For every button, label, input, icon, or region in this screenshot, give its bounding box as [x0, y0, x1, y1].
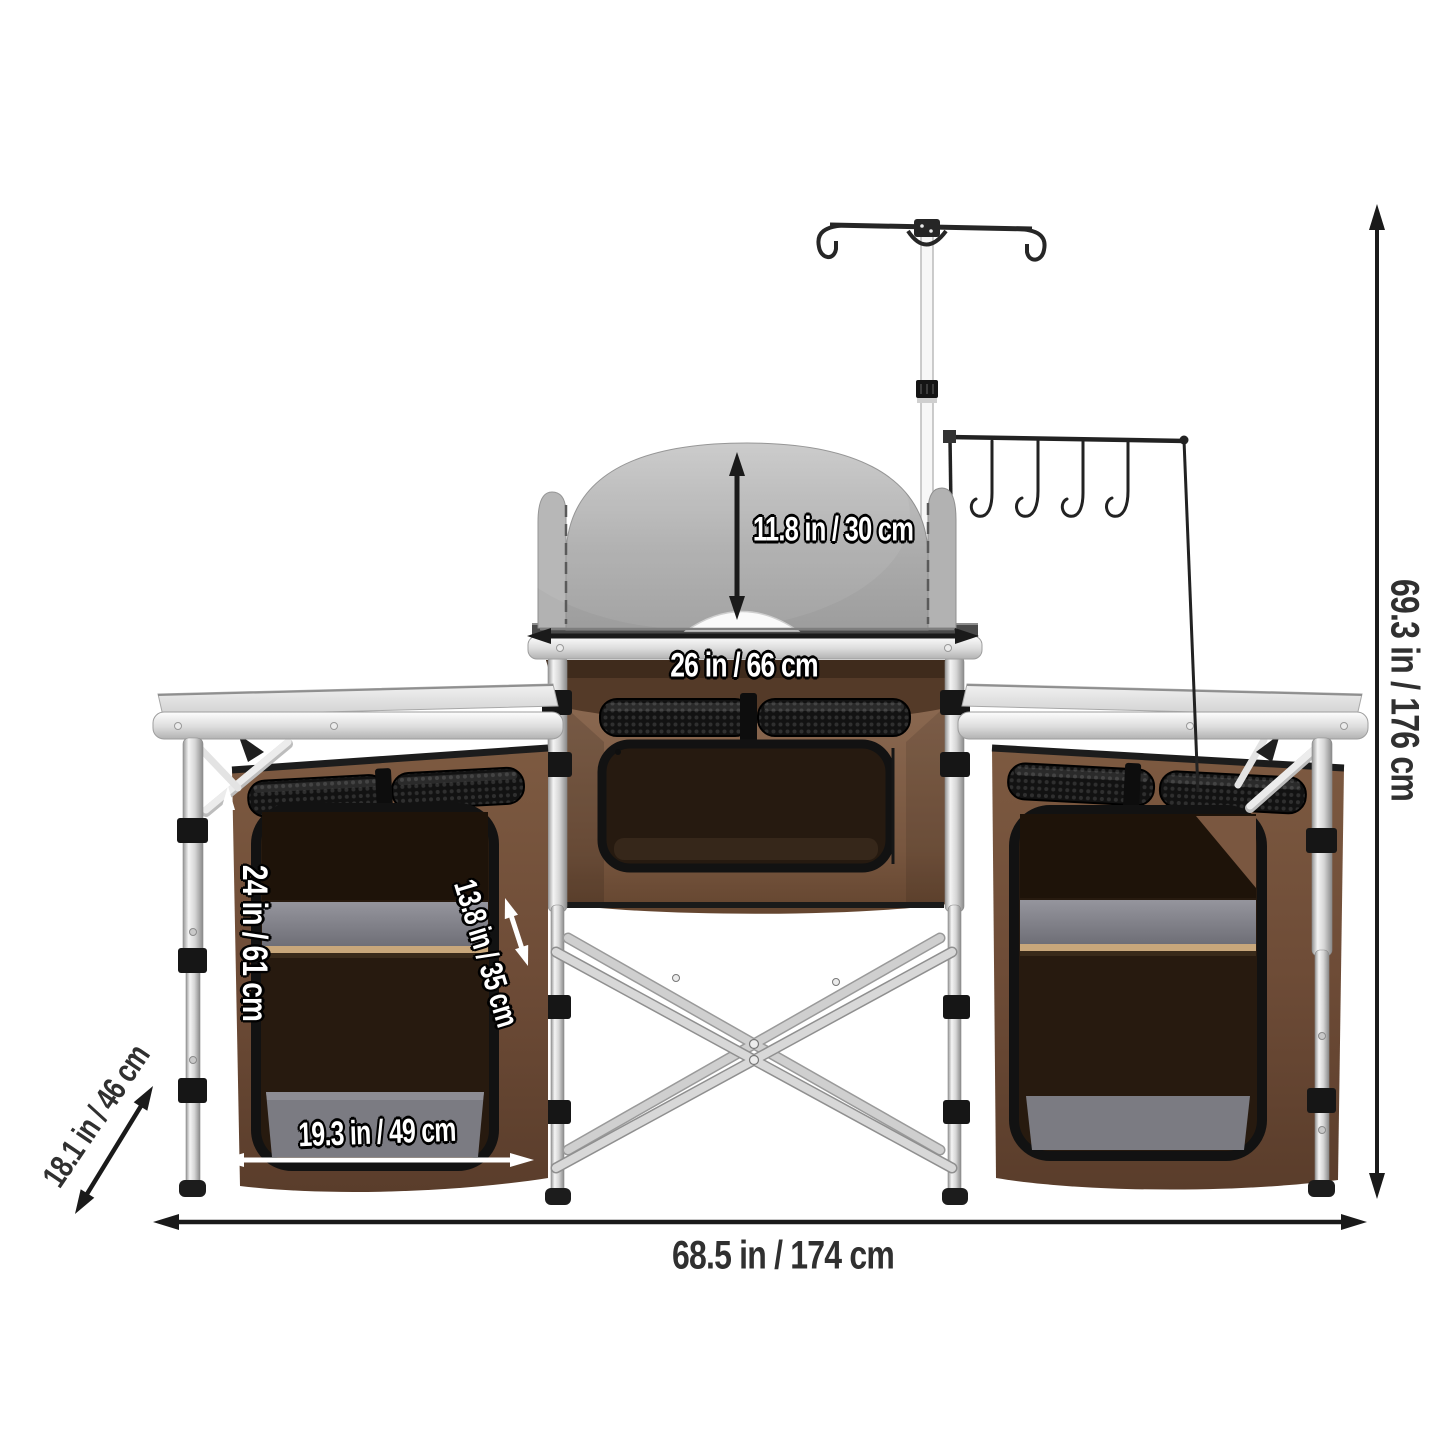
center-storage-unit: [546, 660, 960, 914]
right-compartment-opening: [1014, 810, 1262, 1156]
right-shelf: [1020, 900, 1256, 946]
dimension-arrow-total-width: [153, 1214, 1367, 1230]
dimension-arrow-cabinet-height: [221, 786, 235, 1152]
s-hook-icon: [971, 441, 1128, 516]
left-cabinet: [232, 748, 548, 1192]
dimension-arrow-total-height: [1369, 204, 1385, 1199]
left-compartment-opening: [256, 808, 494, 1166]
right-cabinet: [992, 748, 1344, 1190]
camping-kitchen-illustration: [0, 0, 1445, 1445]
product-dimension-diagram: 11.8 in / 30 cm 26 in / 66 cm 69.3 in / …: [0, 0, 1445, 1445]
windscreen: [490, 400, 956, 631]
left-table-leg: [177, 738, 208, 1197]
dimension-arrow-depth: [75, 1086, 153, 1214]
left-shelf: [262, 902, 488, 948]
center-compartment-opening: [602, 744, 893, 868]
